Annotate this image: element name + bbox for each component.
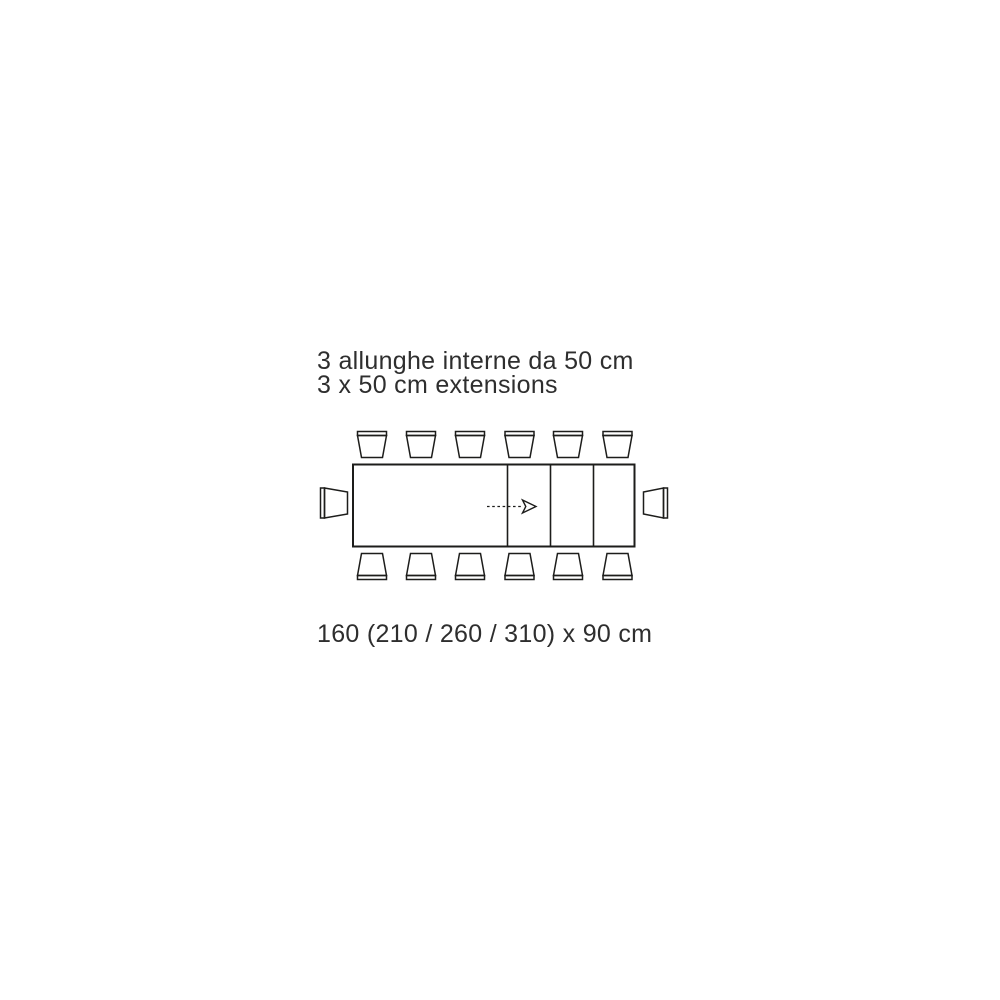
dimensions-label: 160 (210 / 260 / 310) x 90 cm	[317, 620, 652, 648]
chair-bottom-6	[603, 554, 632, 580]
chair-backrest	[407, 576, 436, 580]
table-plan-diagram	[0, 0, 1000, 1000]
chair-left	[321, 488, 348, 518]
chair-seat	[358, 436, 387, 458]
chair-seat	[358, 554, 387, 576]
chair-seat	[456, 436, 485, 458]
chair-bottom-5	[554, 554, 583, 580]
chair-top-4	[505, 432, 534, 458]
chair-bottom-3	[456, 554, 485, 580]
chair-backrest	[664, 488, 668, 518]
chair-top-6	[603, 432, 632, 458]
page-canvas: 3 allunghe interne da 50 cm 3 x 50 cm ex…	[0, 0, 1000, 1000]
chair-backrest	[554, 576, 583, 580]
chair-seat	[603, 436, 632, 458]
table-outline	[353, 465, 635, 547]
chair-bottom-1	[358, 554, 387, 580]
chair-seat	[407, 436, 436, 458]
chair-seat	[325, 488, 348, 518]
chair-top-3	[456, 432, 485, 458]
chair-backrest	[603, 576, 632, 580]
chair-seat	[554, 436, 583, 458]
extension-arrowhead	[523, 500, 537, 513]
chair-top-1	[358, 432, 387, 458]
chair-right	[644, 488, 668, 518]
chair-seat	[505, 554, 534, 576]
chair-top-2	[407, 432, 436, 458]
chair-seat	[407, 554, 436, 576]
chair-seat	[603, 554, 632, 576]
chair-backrest	[358, 576, 387, 580]
chair-seat	[456, 554, 485, 576]
chair-seat	[505, 436, 534, 458]
chair-seat	[554, 554, 583, 576]
chair-backrest	[456, 576, 485, 580]
extension-arrow	[487, 500, 536, 513]
chair-seat	[644, 488, 664, 518]
chair-top-5	[554, 432, 583, 458]
chair-bottom-2	[407, 554, 436, 580]
chair-bottom-4	[505, 554, 534, 580]
chair-backrest	[505, 576, 534, 580]
